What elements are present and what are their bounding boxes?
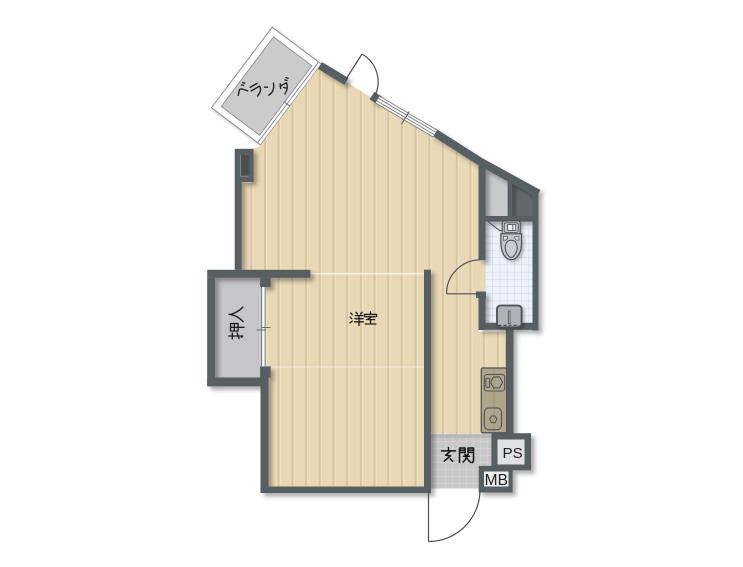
svg-text:MB: MB bbox=[485, 472, 508, 489]
svg-text:PS: PS bbox=[502, 445, 522, 462]
